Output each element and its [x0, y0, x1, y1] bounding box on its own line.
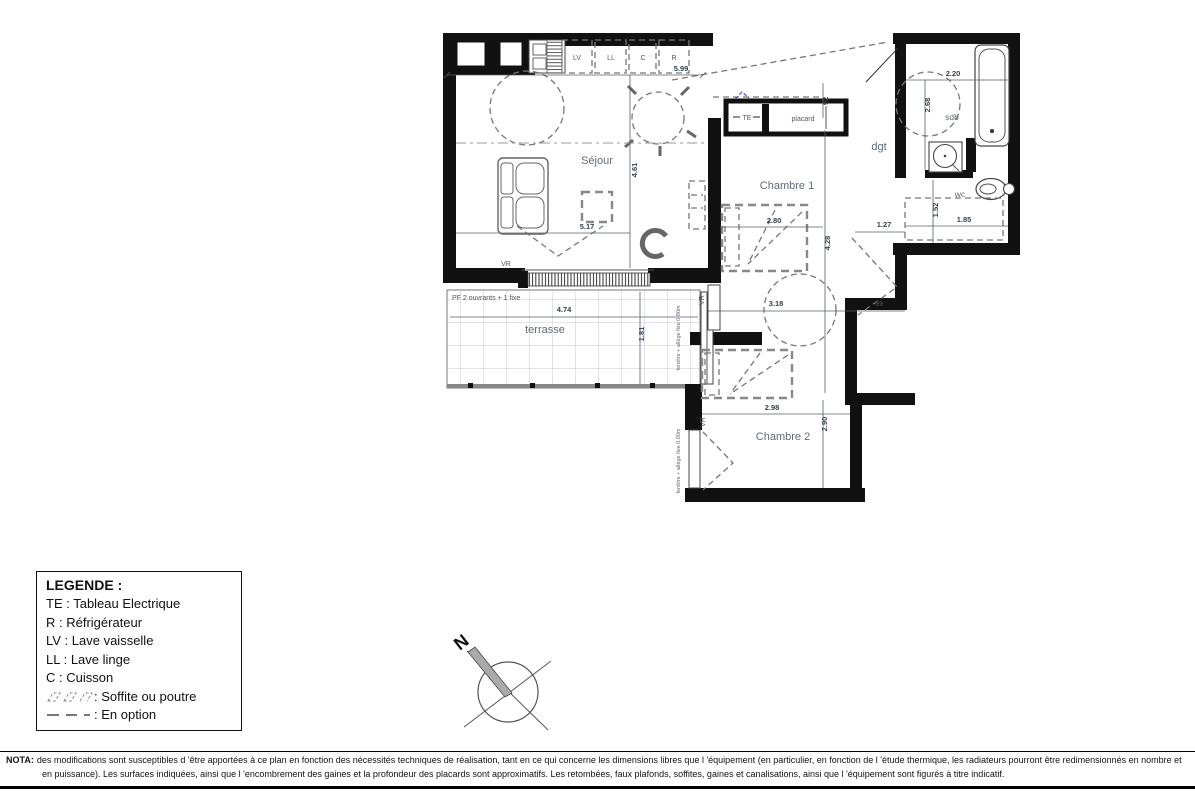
dim-ch2-height: 2.90 [820, 417, 829, 432]
wall-segment [708, 118, 721, 283]
legend-item-lv: LV : Lave vaisselle [46, 632, 232, 651]
chair [628, 86, 636, 94]
legend-soffite-text: : Soffite ou poutre [94, 688, 196, 706]
dim-terrasse-height: 1.81 [637, 327, 646, 342]
bed-1-head [725, 208, 739, 266]
floor-plan-page: TE placard LV LL C R [0, 0, 1195, 800]
wall-segment [893, 33, 1020, 44]
window-chambre1 [708, 285, 720, 330]
wall-segment [685, 488, 865, 502]
dim-hall: 1.27 [877, 220, 892, 229]
window-swing [703, 432, 733, 490]
bed-1 [722, 205, 807, 271]
armchair [642, 230, 666, 256]
dining-table [632, 92, 684, 144]
railing-post [530, 383, 535, 388]
side-table [582, 192, 612, 222]
dim-ch1-width: 2.80 [767, 216, 782, 225]
ll-label: LL [607, 55, 615, 62]
room-label-sejour: Séjour [581, 155, 613, 167]
railing-post [650, 383, 655, 388]
legend-item-te: TE : Tableau Electrique [46, 595, 232, 614]
wall-segment [966, 138, 976, 172]
bathtub-drain [990, 129, 994, 133]
entry-door-leaf [866, 48, 898, 82]
option-circle [490, 71, 564, 145]
te-label: TE [743, 115, 752, 122]
pf-bay-label: PF 2 ouvrants + 1 fixe [452, 295, 520, 302]
chair [625, 140, 633, 147]
dim-terrasse-width: 4.74 [557, 305, 572, 314]
legend-option-text: : En option [94, 706, 156, 724]
room-label-wc: wc [954, 189, 966, 199]
nota-text: des modifications sont susceptibles d 'ê… [37, 755, 1182, 779]
dim-sdb-width: 2.20 [946, 69, 961, 78]
floor-plan: TE placard LV LL C R [430, 18, 1042, 520]
lv-label: LV [573, 55, 581, 62]
radiator [689, 181, 705, 229]
fixed-window-chambre2 [689, 430, 700, 488]
washbasin-drain [944, 155, 947, 158]
r-label: R [671, 55, 676, 62]
dim-entry: 92 [821, 97, 830, 105]
wall-segment [762, 104, 769, 132]
bed-2 [702, 350, 792, 398]
bed-mark [730, 353, 760, 394]
vr-label-sejour: VR [501, 261, 511, 268]
legend-item-option: : En option [46, 706, 232, 724]
compass-needle [468, 647, 512, 697]
room-label-chambre2: Chambre 2 [756, 431, 810, 443]
sofa [498, 158, 548, 234]
vr-label-chambre1: VR [699, 295, 706, 305]
wall-segment [1008, 33, 1020, 255]
terrasse-tiles [447, 290, 700, 388]
railing-post [468, 383, 473, 388]
wall-segment [443, 268, 525, 283]
dim-sdb-height: 2.68 [923, 98, 932, 113]
placard-label: placard [792, 116, 815, 123]
wall-segment [850, 393, 862, 502]
nota-label: NOTA: [6, 755, 34, 765]
terrasse-area [447, 290, 700, 388]
legend-item-ll: LL : Lave linge [46, 651, 232, 670]
wall-segment [518, 271, 528, 288]
dim-wc-height: 1.52 [931, 203, 940, 218]
dim-ch1-height: 4.28 [823, 236, 832, 251]
dim-wc-width: 1.85 [957, 215, 972, 224]
option-symbol-icon [46, 708, 94, 722]
chambre2-furniture [702, 350, 792, 490]
room-label-terrasse: terrasse [525, 324, 565, 336]
north-compass-icon: N [450, 630, 555, 738]
wall-segment [845, 298, 857, 405]
bed-mark [730, 355, 788, 394]
wall-segment [648, 268, 708, 283]
dim-sejour-width: 5.17 [580, 222, 595, 231]
wc-option-zone [905, 198, 1003, 240]
room-label-chambre1: Chambre 1 [760, 180, 814, 192]
chair [687, 131, 696, 137]
north-label: N [450, 630, 473, 654]
sliding-bay-window [528, 273, 650, 286]
room-label-sdb: sdb [945, 112, 959, 122]
railing-post [595, 383, 600, 388]
c-label: C [640, 55, 645, 62]
terrasse-edge [447, 384, 700, 388]
nota-paragraph: NOTA:des modifications sont susceptibles… [6, 754, 1189, 781]
vr-label-chambre2: VR [700, 417, 707, 427]
soffite-symbol-icon [46, 690, 94, 704]
legend-item-soffite: : Soffite ou poutre [46, 688, 232, 706]
soffite-diagonal [672, 42, 888, 80]
dim-ch2-width: 2.98 [765, 403, 780, 412]
soffite-strip [547, 40, 562, 73]
revision-mark [735, 92, 749, 99]
kitchen-window [456, 41, 486, 67]
fixed-window-label-terrasse: fenêtre + allège fixe 0.80m [676, 305, 682, 370]
dim-recess: 99 [875, 299, 883, 308]
chair [681, 87, 689, 95]
legend-box: LEGENDE : TE : Tableau Electrique R : Ré… [36, 571, 242, 731]
room-label-dgt: dgt [871, 141, 886, 153]
wall-segment [893, 243, 1020, 255]
toilet-tank [1004, 184, 1015, 195]
dim-top-width: 5.99 [674, 64, 689, 73]
dim-ch1-lower: 3.18 [769, 299, 784, 308]
fixed-window-label-chambre2: fenêtre + allège fixe 0.80m [676, 428, 682, 493]
legend-item-r: R : Réfrigérateur [46, 614, 232, 633]
nota-bar: NOTA:des modifications sont susceptibles… [0, 751, 1195, 789]
legend-title: LEGENDE : [46, 576, 232, 595]
kitchen-window [499, 41, 523, 67]
dim-sejour-height: 4.61 [630, 163, 639, 178]
legend-item-c: C : Cuisson [46, 669, 232, 688]
